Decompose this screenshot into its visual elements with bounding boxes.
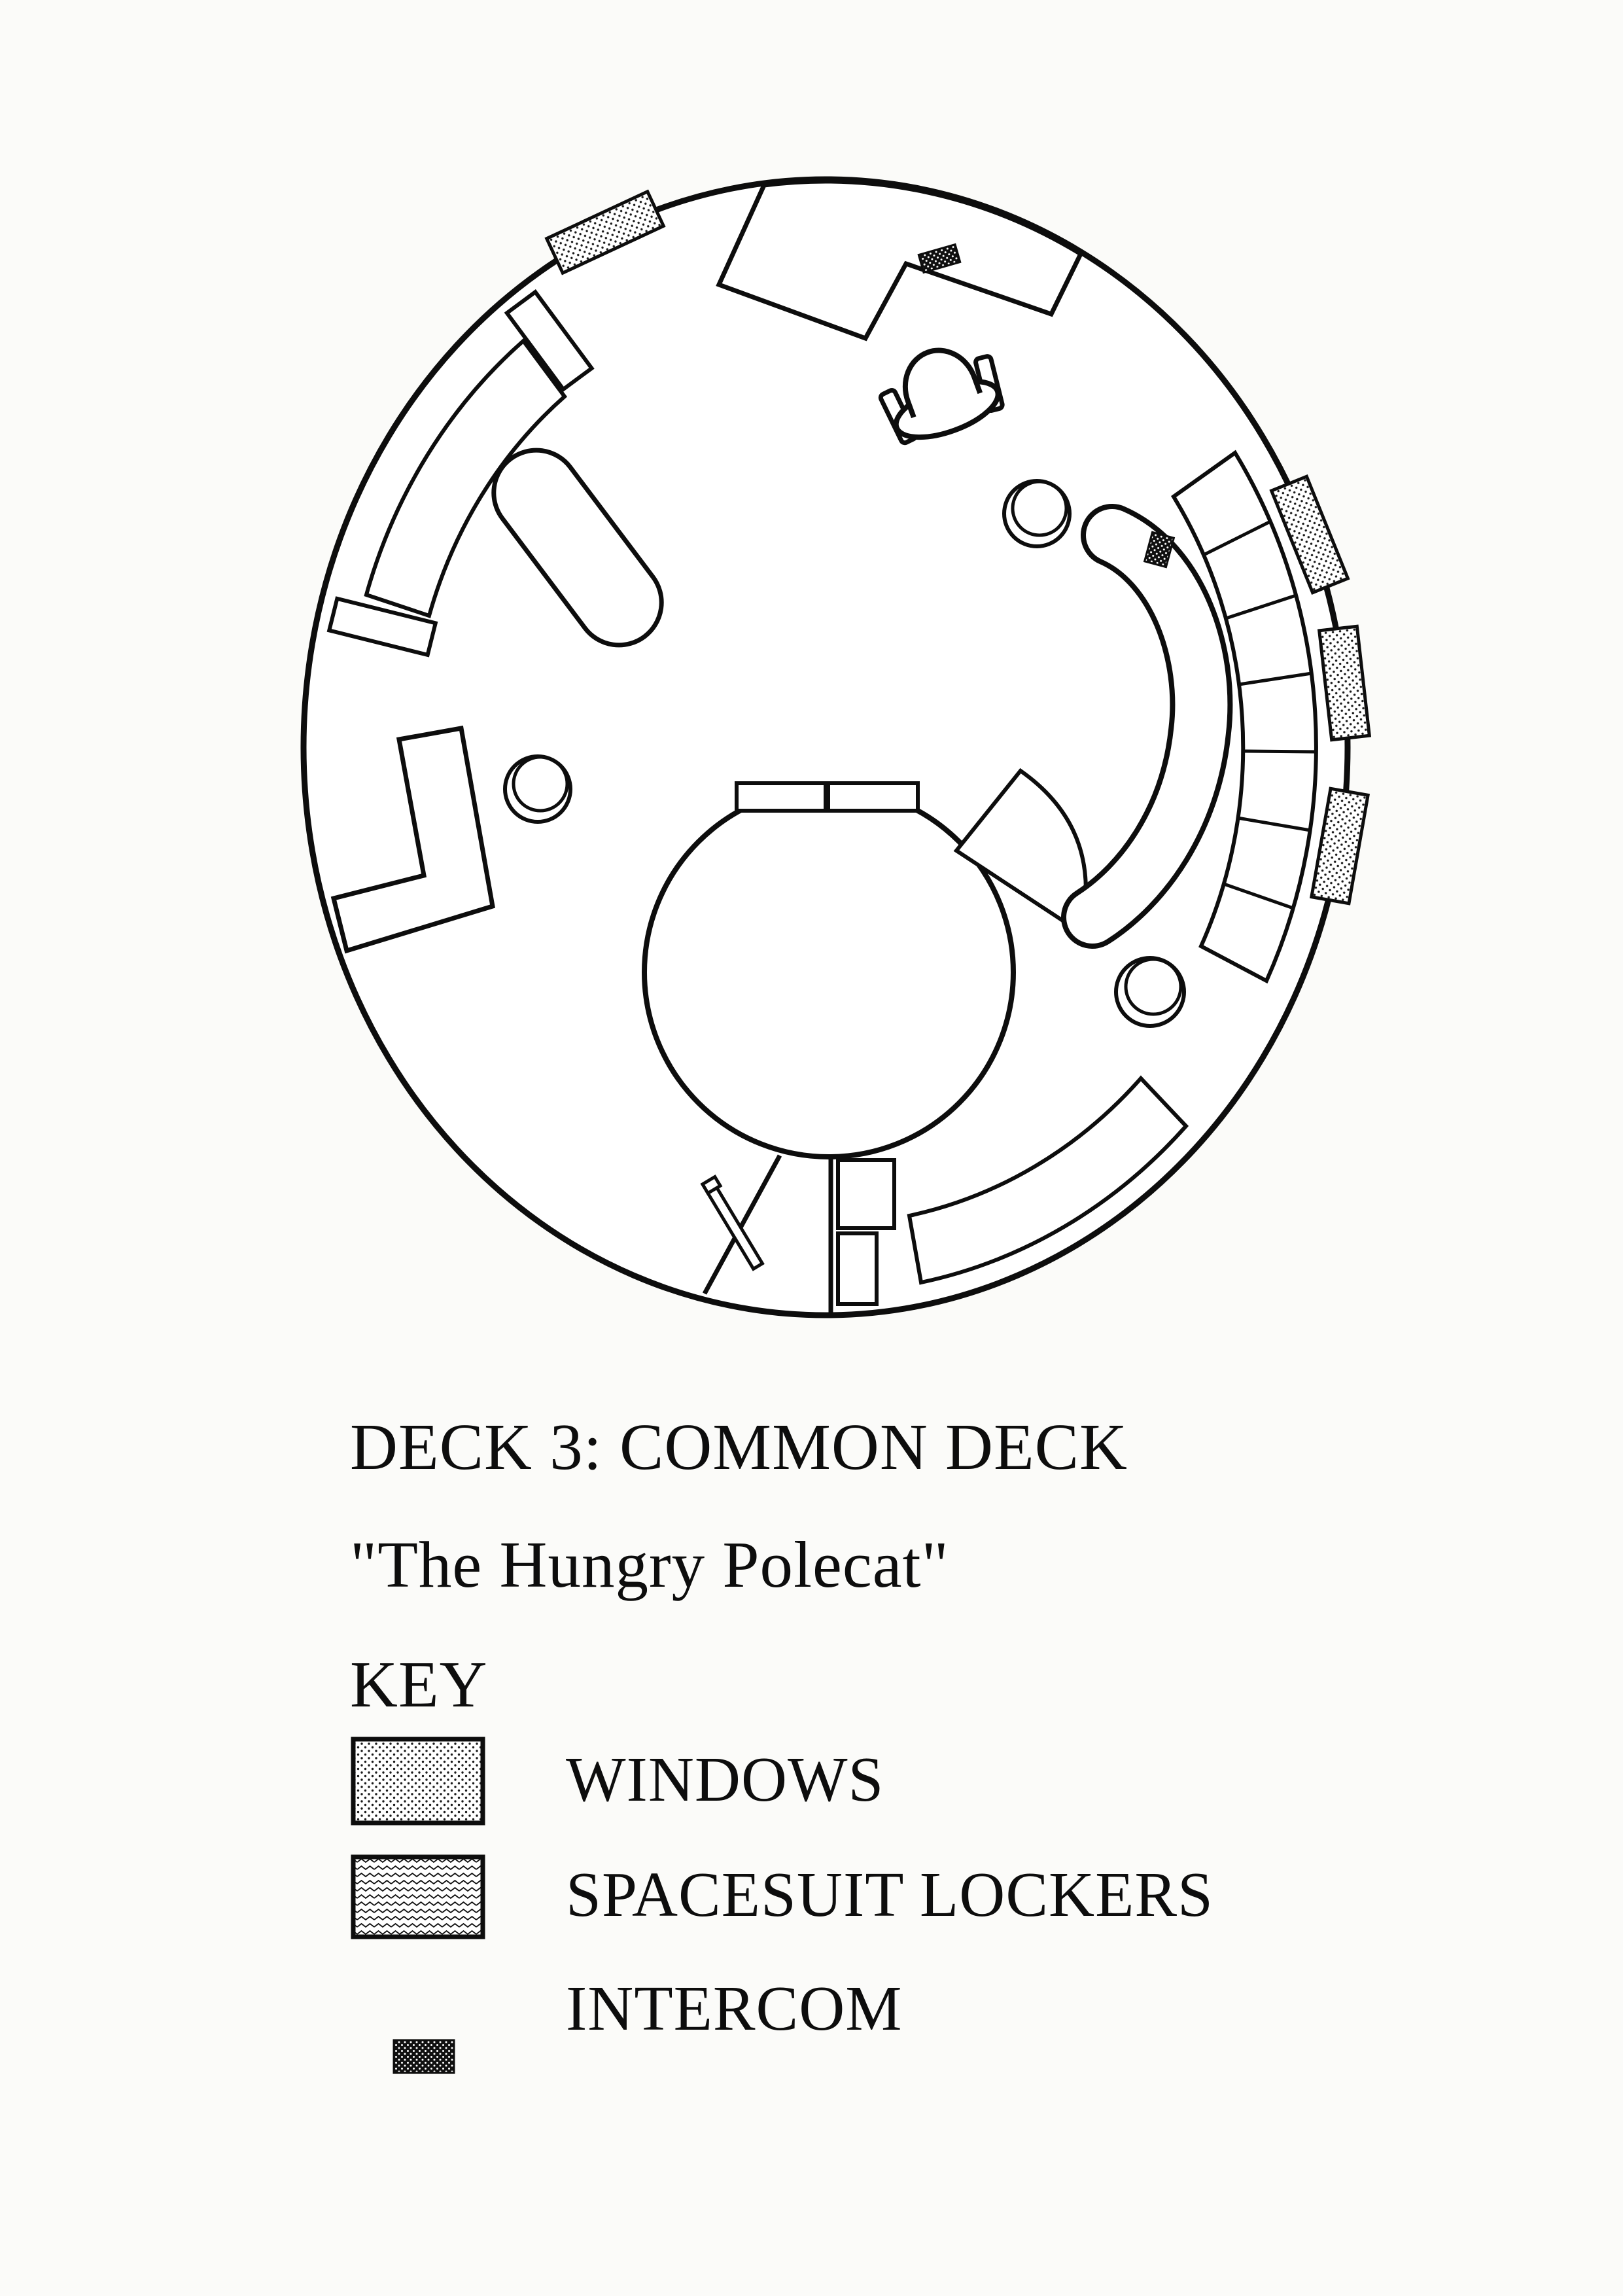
captions: DECK 3: COMMON DECK "The Hungry Polecat" [350,1410,1128,1601]
scanned-page: DECK 3: COMMON DECK "The Hungry Polecat"… [0,0,1623,2296]
key-heading: KEY [350,1648,488,1721]
deck-plan-figure: DECK 3: COMMON DECK "The Hungry Polecat"… [0,0,1623,2296]
stool-left [505,756,570,822]
deck-name: "The Hungry Polecat" [350,1528,949,1601]
key-label-windows: WINDOWS [566,1744,884,1814]
stool-lower-right [1116,958,1184,1026]
intercom-swatch [394,2040,454,2073]
side-table-lower [838,1233,877,1304]
key: KEY WINDOWS SPACESUIT LOCKERS INTERCOM [350,1648,1213,2073]
key-label-intercom: INTERCOM [566,1973,903,2043]
key-label-spacesuit-lockers: SPACESUIT LOCKERS [566,1860,1213,1930]
central-table [644,788,1013,1157]
spacesuit-lockers-swatch [353,1857,483,1937]
table-counter-right [828,783,918,811]
table-counter-left [737,783,826,811]
deck-title: DECK 3: COMMON DECK [350,1410,1128,1483]
windows-swatch [353,1739,483,1823]
side-table-upper [838,1160,894,1228]
floor-plan [304,179,1369,1315]
stool-upper-right [1004,481,1070,546]
